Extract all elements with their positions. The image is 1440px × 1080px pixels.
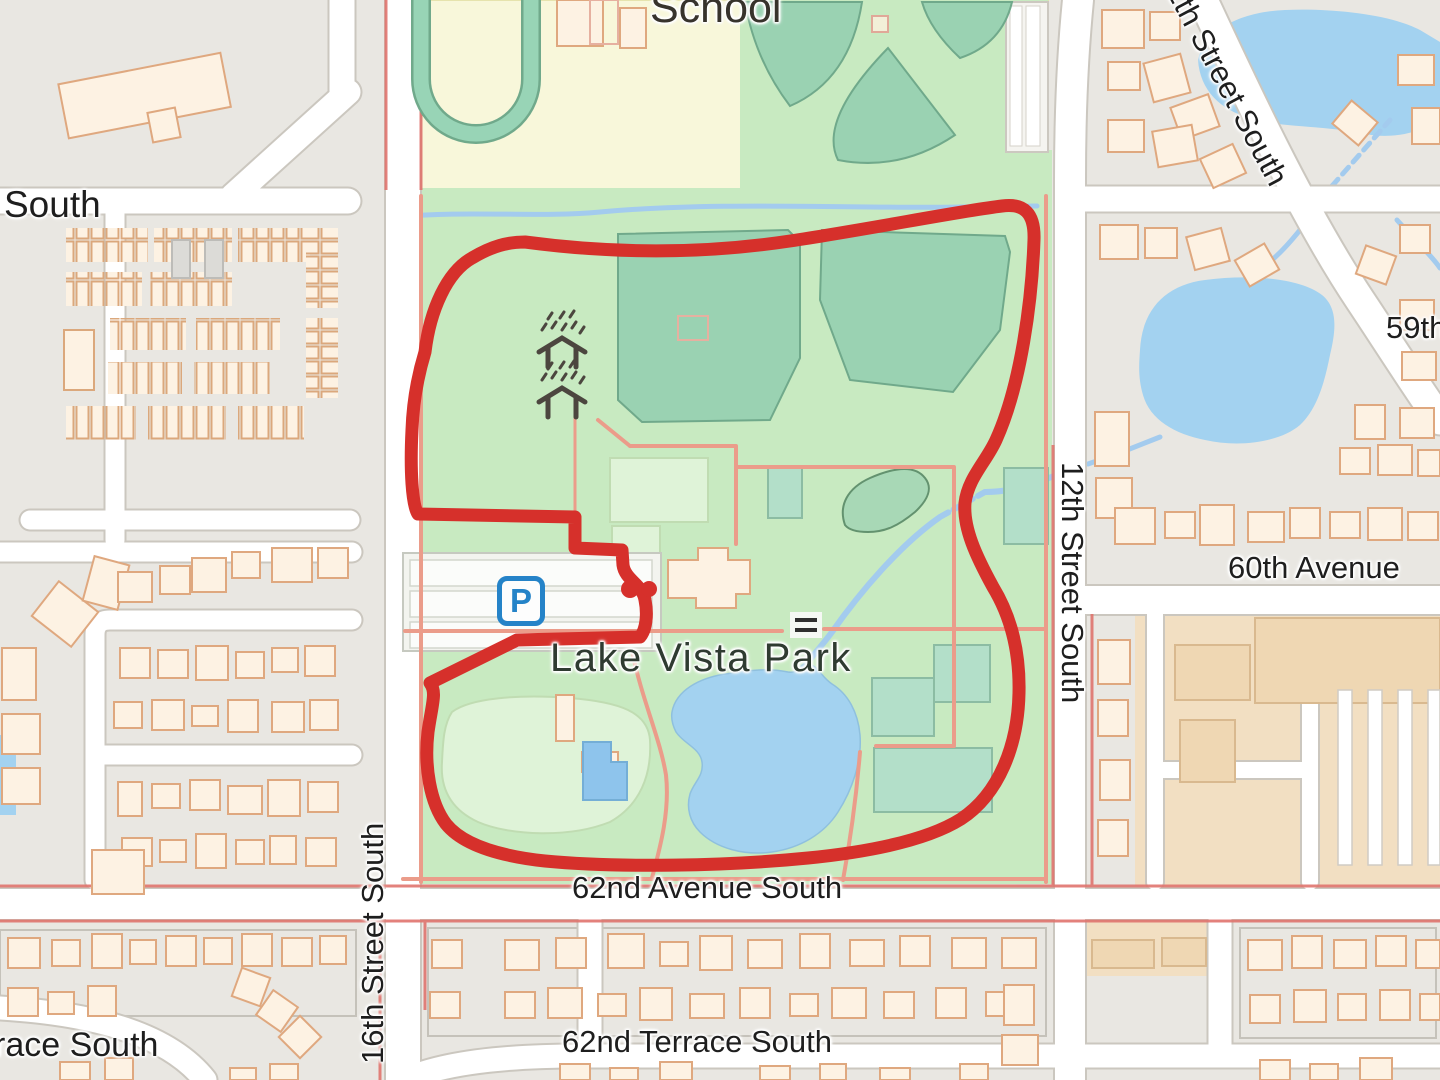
map-canvas[interactable]: School Lake Vista Park South th 11th Str… <box>0 0 1440 1080</box>
parking-icon: P <box>497 576 545 626</box>
pond-east <box>1139 277 1334 443</box>
map-graphics <box>0 0 1440 1080</box>
playground <box>610 458 708 522</box>
parking-icon-letter: P <box>510 582 532 620</box>
bridge-icon <box>790 612 822 638</box>
